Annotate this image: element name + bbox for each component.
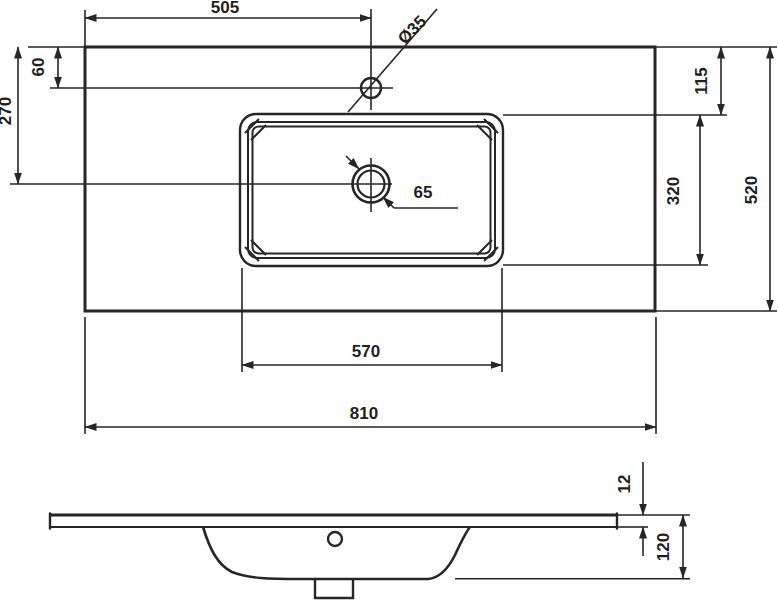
dim-570: 570 <box>242 268 502 372</box>
dim-115-label: 115 <box>692 67 711 94</box>
dim-120-label: 120 <box>654 533 673 561</box>
dim-60: 60 <box>28 47 85 88</box>
dim-60-label: 60 <box>29 58 48 77</box>
dim-12: 12 <box>615 462 690 556</box>
dim-270-label: 270 <box>0 97 15 125</box>
dim-270: 270 <box>0 47 18 184</box>
dim-505-label: 505 <box>211 0 239 17</box>
drain <box>10 158 392 212</box>
dim-570-label: 570 <box>352 342 380 361</box>
dim-320: 320 <box>503 115 708 265</box>
dim-810-label: 810 <box>350 404 378 423</box>
slab-profile <box>50 514 617 529</box>
dim-520-label: 520 <box>742 176 761 204</box>
dim-12-label: 12 <box>615 475 634 494</box>
top-view: 505 Ø35 60 270 115 320 <box>0 0 777 434</box>
dim-505: 505 <box>85 0 371 47</box>
dim-dia35-label: Ø35 <box>394 12 430 48</box>
dim-dia35: Ø35 <box>348 9 437 112</box>
drain-tailpiece <box>315 579 353 598</box>
overflow-hole <box>328 532 342 546</box>
side-view: 12 120 <box>50 462 690 598</box>
dim-320-label: 320 <box>664 177 683 205</box>
bowl-profile <box>203 527 470 579</box>
dim-115: 115 <box>503 47 777 115</box>
drawing-page: 505 Ø35 60 270 115 320 <box>0 0 778 600</box>
dim-65-label: 65 <box>414 183 433 202</box>
dim-120: 120 <box>455 515 690 579</box>
dim-810: 810 <box>85 317 656 434</box>
technical-drawing-canvas: 505 Ø35 60 270 115 320 <box>0 0 778 600</box>
